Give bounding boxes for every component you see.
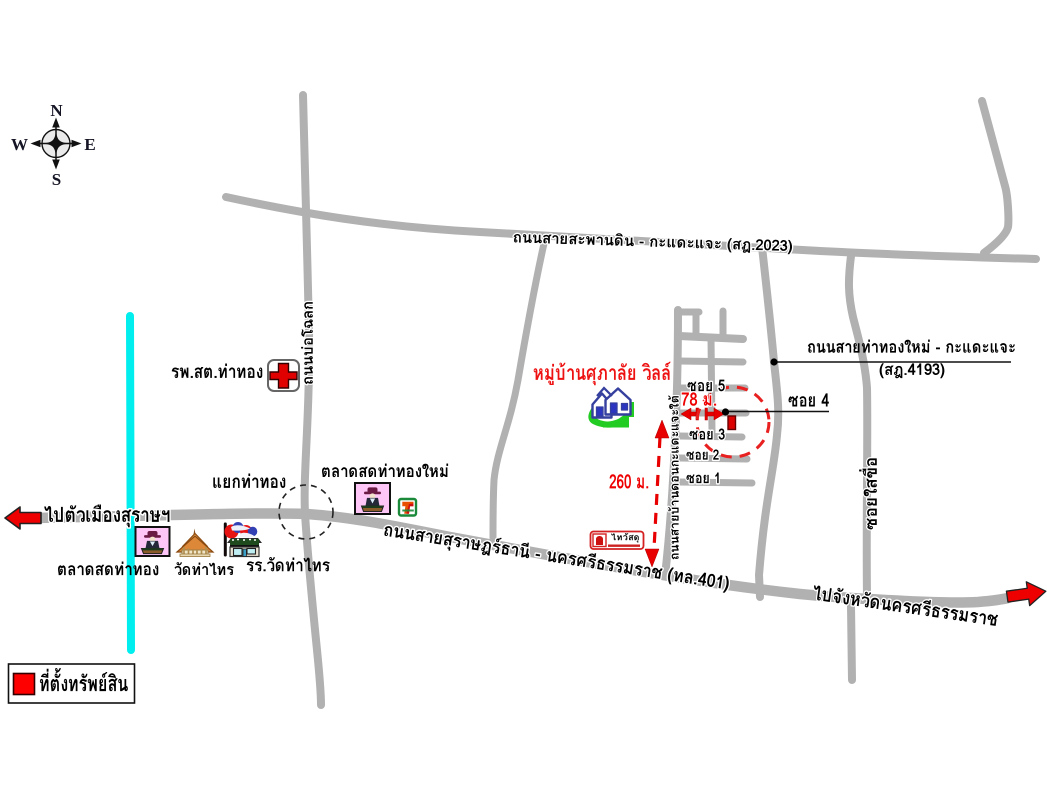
svg-text:W: W bbox=[11, 135, 28, 154]
svg-text:S: S bbox=[52, 170, 61, 189]
svg-text:E: E bbox=[84, 135, 95, 154]
svg-text:N: N bbox=[50, 101, 63, 120]
